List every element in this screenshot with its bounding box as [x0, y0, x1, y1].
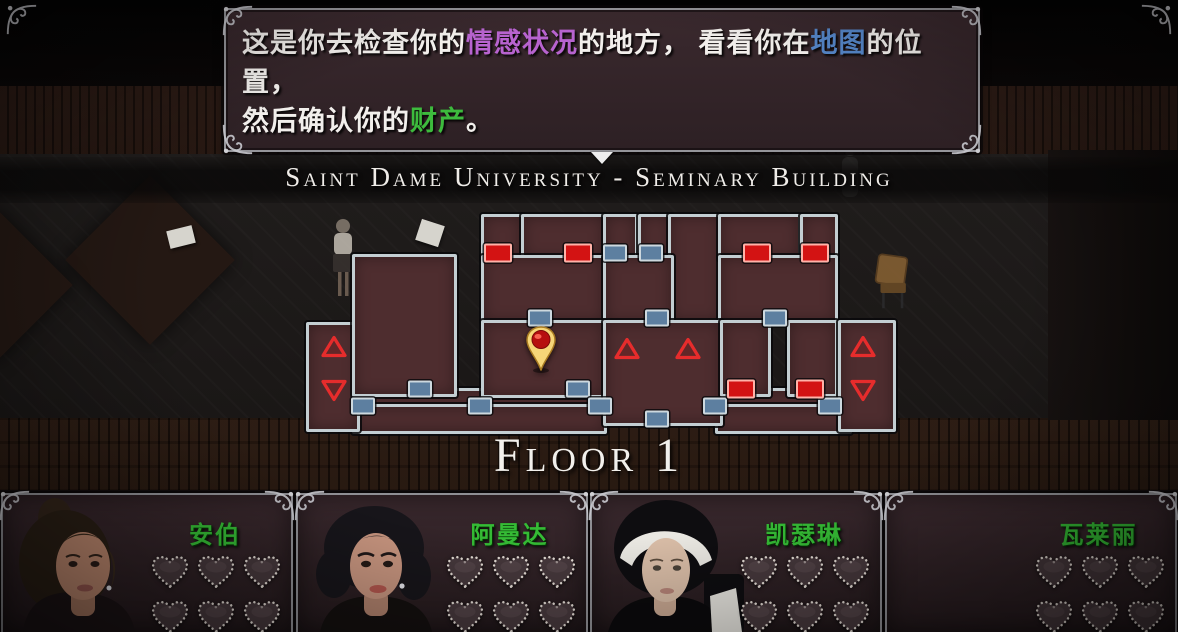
- heart-icon: [492, 555, 530, 590]
- heart-icon: [1081, 555, 1119, 590]
- heart-icon: [151, 555, 189, 590]
- dialogue-segment: 情感状况: [466, 28, 578, 58]
- corner-ornament-icon: [0, 488, 31, 522]
- character-name: 凯瑟琳: [738, 515, 870, 550]
- red-door[interactable]: [564, 244, 592, 263]
- dialogue-segment: 的地方， 看看你在: [578, 28, 811, 58]
- blue-door[interactable]: [468, 398, 492, 415]
- red-door[interactable]: [796, 380, 824, 399]
- game-screen: Saint Dame University - Seminary Buildin…: [0, 0, 1178, 632]
- map-canvas: [300, 203, 900, 433]
- stairs-down-icon[interactable]: [850, 379, 876, 408]
- map-room: [668, 214, 723, 323]
- dialogue-segment: 这是你去检查你的: [242, 28, 466, 58]
- stairs-down-icon[interactable]: [321, 379, 347, 408]
- character-panel[interactable]: 安伯: [1, 493, 293, 632]
- heart-icon: [832, 555, 870, 590]
- heart-icon: [197, 555, 235, 590]
- heart-icon: [151, 600, 189, 632]
- blue-door[interactable]: [408, 381, 432, 398]
- dialogue-segment: 财产: [410, 106, 466, 136]
- portrait-amanda: [298, 496, 458, 632]
- red-door[interactable]: [484, 244, 512, 263]
- blue-door[interactable]: [588, 398, 612, 415]
- hearts-grid: [151, 555, 281, 632]
- dialogue-segment: 。: [466, 106, 494, 136]
- heart-icon: [538, 600, 576, 632]
- red-door[interactable]: [801, 244, 829, 263]
- corner-ornament-icon: [586, 488, 620, 522]
- heart-icon: [740, 600, 778, 632]
- blue-door[interactable]: [645, 310, 669, 327]
- dialogue-box[interactable]: 这是你去检查你的情感状况的地方， 看看你在地图的位置，然后确认你的财产。: [224, 8, 980, 152]
- character-panel[interactable]: 瓦莱丽: [885, 493, 1177, 632]
- heart-icon: [1081, 600, 1119, 632]
- character-name: 瓦莱丽: [1033, 515, 1165, 550]
- heart-icon: [243, 555, 281, 590]
- dialogue-segment: 然后确认你的: [242, 106, 410, 136]
- dialogue-segment: 地图: [811, 28, 867, 58]
- blue-door[interactable]: [703, 398, 727, 415]
- heart-icon: [197, 600, 235, 632]
- portrait-amber: [3, 496, 163, 632]
- player-location-pin-icon: [524, 326, 558, 379]
- character-panel[interactable]: 凯瑟琳: [590, 493, 882, 632]
- character-name: 安伯: [149, 515, 281, 550]
- blue-door[interactable]: [645, 411, 669, 428]
- character-band: 安伯 阿曼达: [0, 490, 1178, 632]
- building-title: Saint Dame University - Seminary Buildin…: [0, 162, 1178, 193]
- hearts-grid: [446, 555, 576, 632]
- red-door[interactable]: [727, 380, 755, 399]
- heart-icon: [1035, 555, 1073, 590]
- heart-icon: [446, 555, 484, 590]
- screen-corner-ornament-icon: [4, 2, 34, 32]
- portrait-none: [887, 496, 1047, 632]
- blue-door[interactable]: [351, 398, 375, 415]
- hearts-grid: [1035, 555, 1165, 632]
- blue-door[interactable]: [603, 245, 627, 262]
- heart-icon: [1127, 600, 1165, 632]
- hearts-grid: [740, 555, 870, 632]
- character-name: 阿曼达: [444, 515, 576, 550]
- red-door[interactable]: [743, 244, 771, 263]
- heart-icon: [243, 600, 281, 632]
- portrait-katherine: [592, 496, 752, 632]
- map-room: [352, 254, 457, 397]
- dialogue-text: 这是你去检查你的情感状况的地方， 看看你在地图的位置，然后确认你的财产。: [226, 10, 978, 141]
- blue-door[interactable]: [528, 310, 552, 327]
- heart-icon: [832, 600, 870, 632]
- stairs-up-icon[interactable]: [675, 337, 701, 366]
- heart-icon: [446, 600, 484, 632]
- heart-icon: [786, 555, 824, 590]
- stairs-up-icon[interactable]: [321, 335, 347, 364]
- stairs-up-icon[interactable]: [850, 335, 876, 364]
- stairs-up-icon[interactable]: [614, 337, 640, 366]
- corner-ornament-icon: [292, 488, 326, 522]
- heart-icon: [786, 600, 824, 632]
- heart-icon: [492, 600, 530, 632]
- heart-icon: [538, 555, 576, 590]
- continue-pointer-icon: [591, 152, 613, 164]
- blue-door[interactable]: [639, 245, 663, 262]
- blue-door[interactable]: [763, 310, 787, 327]
- heart-icon: [1035, 600, 1073, 632]
- heart-icon: [740, 555, 778, 590]
- blue-door[interactable]: [566, 381, 590, 398]
- corner-ornament-icon: [881, 488, 915, 522]
- character-panel[interactable]: 阿曼达: [296, 493, 588, 632]
- heart-icon: [1127, 555, 1165, 590]
- screen-corner-ornament-icon: [1144, 2, 1174, 32]
- floor-label: Floor 1: [0, 428, 1178, 483]
- blue-door[interactable]: [818, 398, 842, 415]
